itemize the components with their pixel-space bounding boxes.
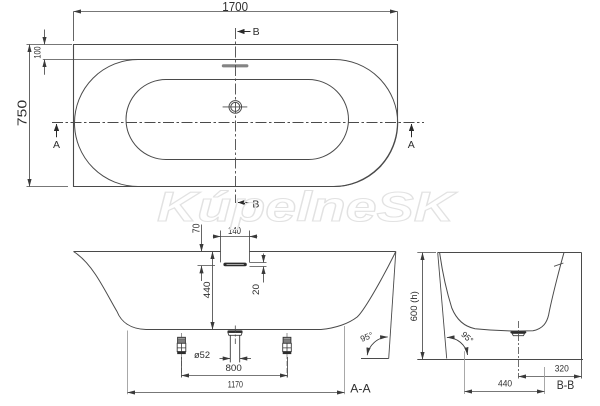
svg-text:B: B: [253, 26, 260, 38]
svg-text:1700: 1700: [222, 0, 248, 14]
svg-text:A-A: A-A: [350, 381, 371, 395]
svg-text:320: 320: [555, 364, 569, 375]
svg-text:750: 750: [16, 100, 30, 127]
svg-text:600 (h): 600 (h): [409, 291, 419, 321]
svg-text:A: A: [53, 139, 60, 151]
svg-text:100: 100: [32, 46, 43, 58]
svg-text:800: 800: [226, 363, 242, 374]
svg-text:ø52: ø52: [194, 350, 210, 361]
svg-text:KúpelneSK: KúpelneSK: [157, 183, 458, 230]
svg-text:B-B: B-B: [557, 380, 575, 392]
svg-text:95°: 95°: [359, 330, 375, 344]
svg-text:20: 20: [251, 284, 262, 295]
svg-text:440: 440: [498, 379, 512, 390]
svg-text:440: 440: [202, 281, 213, 298]
svg-text:1170: 1170: [228, 379, 243, 390]
svg-text:A: A: [408, 139, 415, 151]
